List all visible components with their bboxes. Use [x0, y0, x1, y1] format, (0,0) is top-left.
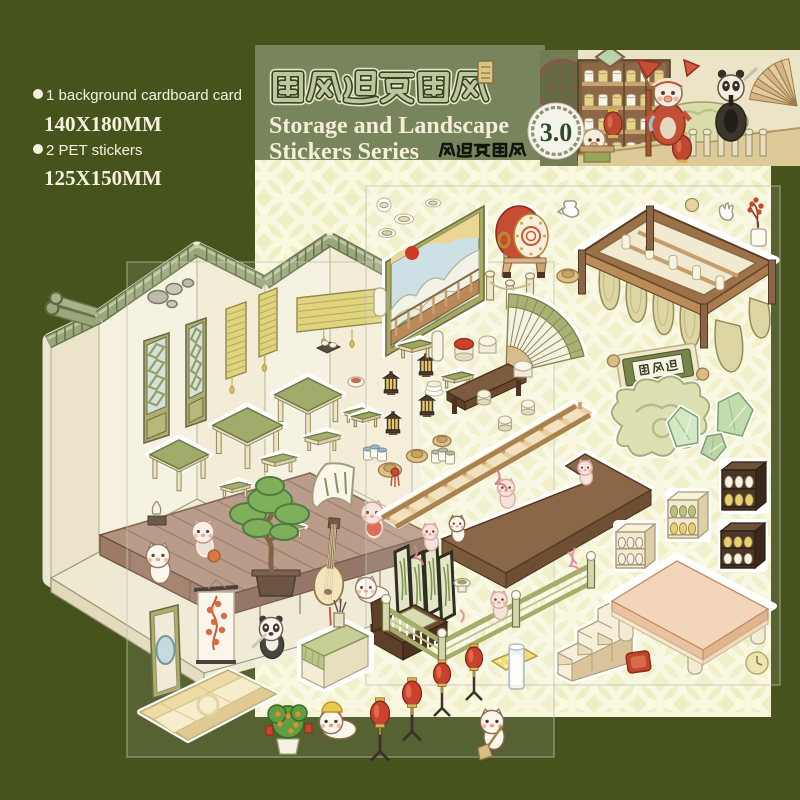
svg-text:3.0: 3.0 — [540, 118, 573, 147]
svg-text:125X150MM: 125X150MM — [44, 166, 162, 190]
svg-text:1 background cardboard card: 1 background cardboard card — [46, 87, 242, 104]
svg-text:140X180MM: 140X180MM — [44, 112, 162, 136]
svg-text:Stickers Series: Stickers Series — [269, 139, 419, 165]
svg-text:2 PET stickers: 2 PET stickers — [46, 142, 142, 159]
svg-text:Storage and Landscape: Storage and Landscape — [269, 113, 509, 139]
